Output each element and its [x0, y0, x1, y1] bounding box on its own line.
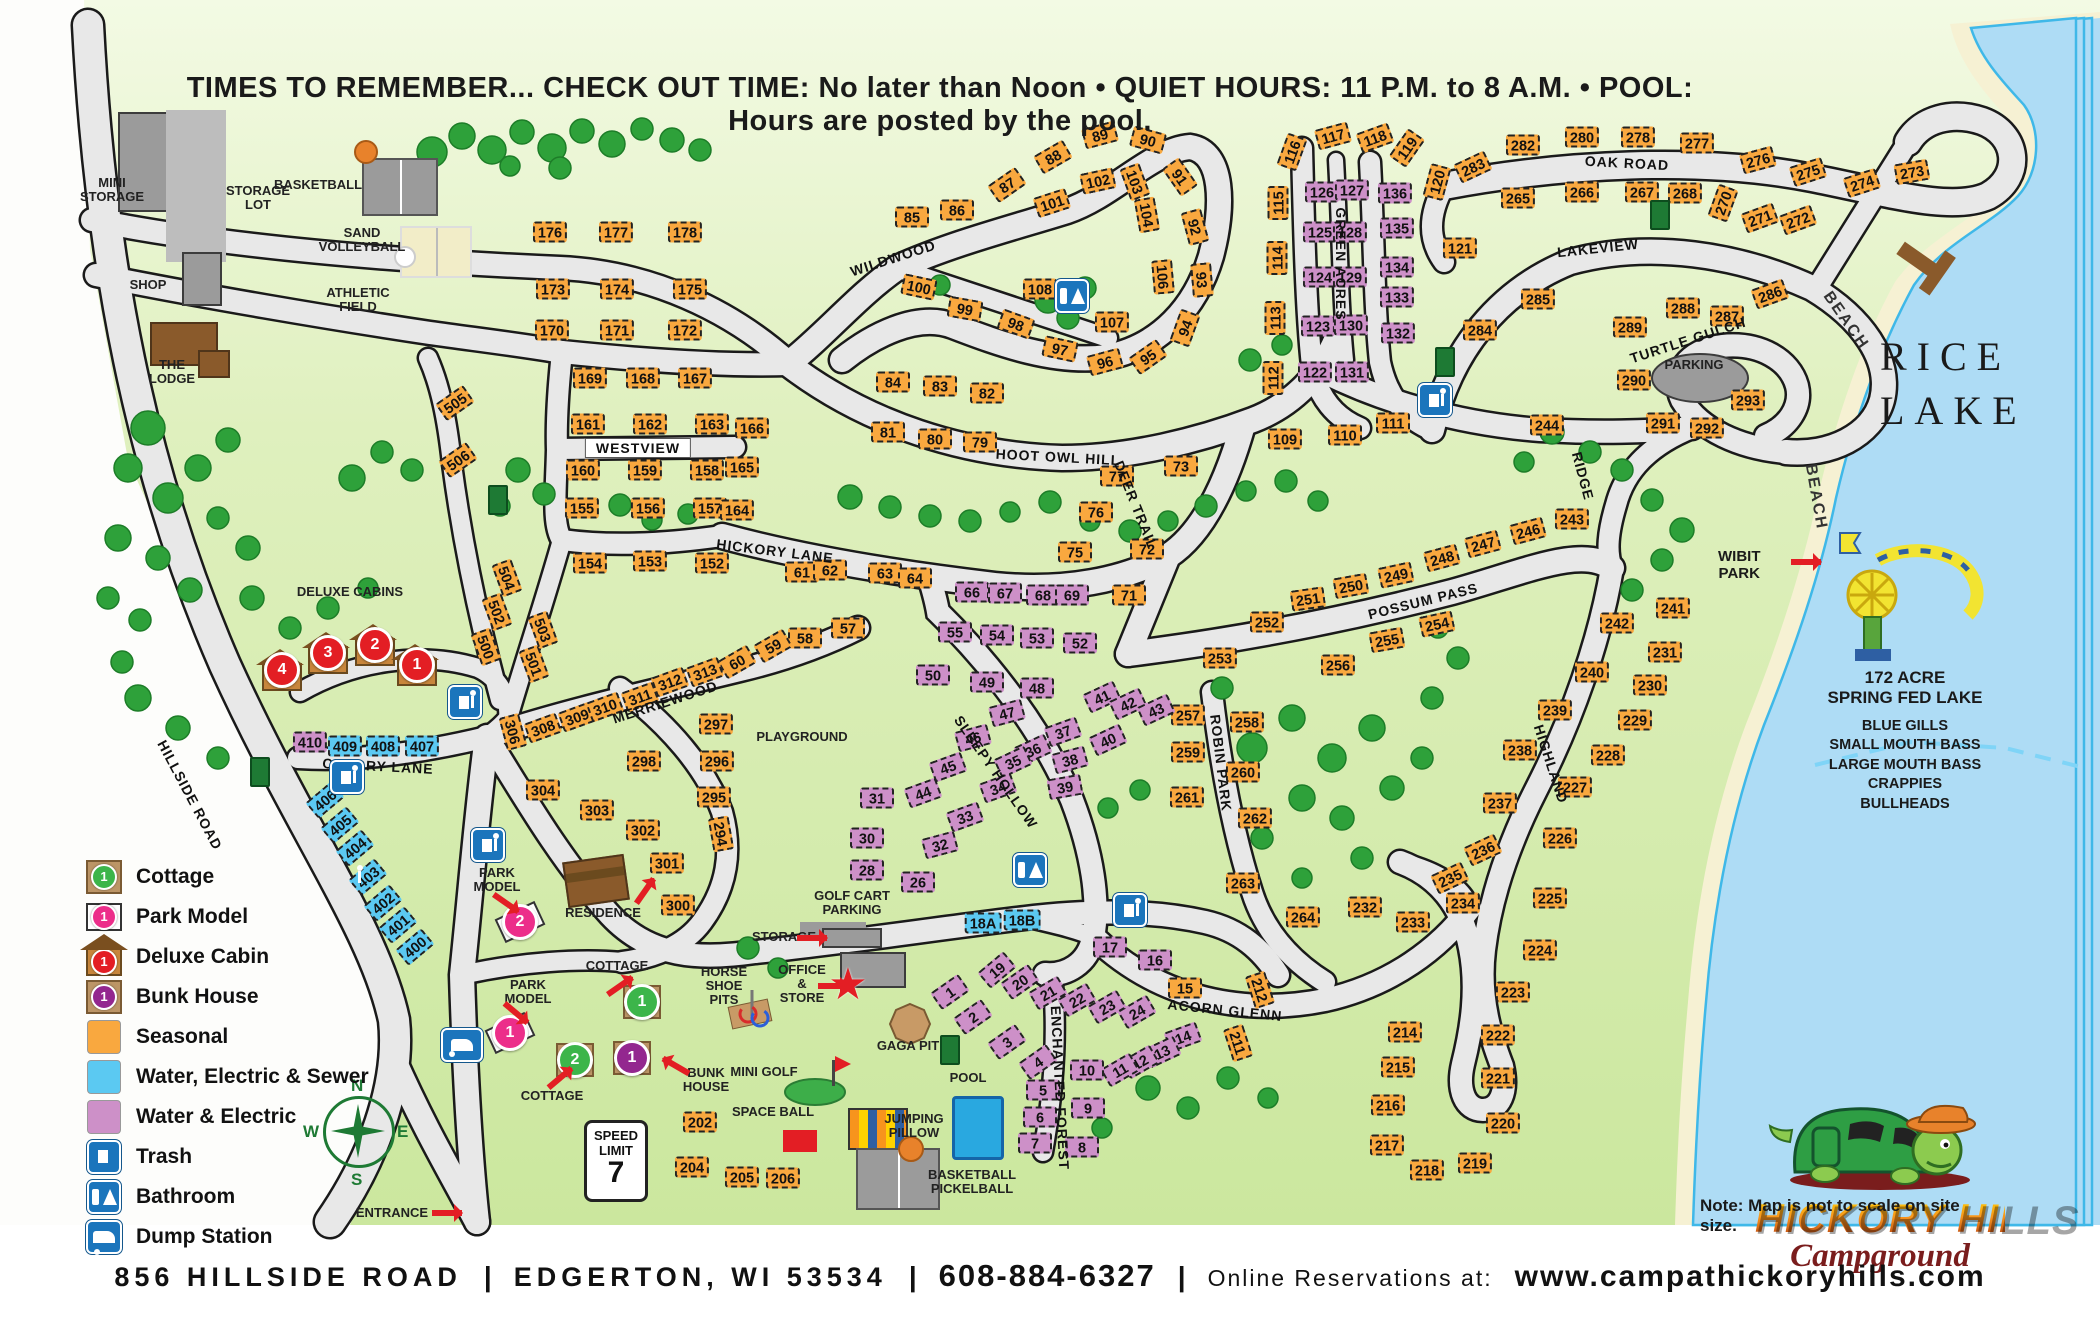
site-242: 242 — [1600, 613, 1634, 634]
site-131: 131 — [1335, 362, 1369, 383]
legend-item-water-electric: Water & Electric — [86, 1100, 369, 1133]
legend-label: Bathroom — [136, 1185, 235, 1209]
road-label-hillside-road: HILLSIDE ROAD — [154, 737, 225, 852]
site-104: 104 — [1134, 196, 1161, 233]
site-91: 91 — [1162, 157, 1199, 197]
site-240: 240 — [1575, 662, 1609, 683]
deluxe-cabin-1: 1 — [397, 644, 437, 686]
site-266: 266 — [1565, 182, 1599, 203]
site-220: 220 — [1486, 1113, 1520, 1134]
site-253: 253 — [1203, 648, 1237, 669]
site-58: 58 — [788, 628, 822, 649]
site-99: 99 — [946, 296, 983, 323]
site-501: 501 — [518, 644, 549, 683]
site-52: 52 — [1063, 633, 1097, 654]
site-160: 160 — [566, 460, 600, 481]
fish-item: LARGE MOUTH BASS — [1815, 756, 1995, 776]
site-96: 96 — [1086, 347, 1124, 376]
site-177: 177 — [599, 222, 633, 243]
facility-label-shop: SHOP — [130, 278, 167, 292]
site-120: 120 — [1422, 163, 1451, 201]
site-283: 283 — [1453, 150, 1493, 183]
site-273: 273 — [1893, 159, 1930, 186]
wibit-park-label: WIBIT PARK — [1718, 548, 1761, 582]
site-135: 135 — [1380, 218, 1414, 239]
site-165: 165 — [725, 457, 759, 478]
porta-potty-icon — [250, 757, 270, 787]
pointer-arrow-icon — [797, 935, 827, 941]
site-217: 217 — [1370, 1135, 1404, 1156]
porta-potty-icon — [940, 1035, 960, 1065]
site-103: 103 — [1119, 162, 1150, 201]
site-410: 410 — [293, 732, 327, 753]
site-171: 171 — [600, 320, 634, 341]
site-54: 54 — [980, 625, 1014, 646]
legend-swatch — [86, 1100, 122, 1134]
facility-label-park-model: PARK MODEL — [505, 978, 552, 1006]
pointer-arrow-icon — [634, 877, 656, 905]
site-265: 265 — [1501, 188, 1535, 209]
site-44: 44 — [903, 777, 942, 808]
site-308: 308 — [523, 712, 562, 743]
site-102: 102 — [1079, 167, 1117, 195]
site-407: 407 — [405, 736, 439, 757]
road-label-oak-road: OAK ROAD — [1585, 153, 1670, 173]
site-71: 71 — [1112, 585, 1146, 606]
site-97: 97 — [1041, 335, 1079, 363]
site-296: 296 — [700, 751, 734, 772]
site-169: 169 — [573, 368, 607, 389]
legend-item-seasonal: Seasonal — [86, 1020, 369, 1053]
road-label-ridge: RIDGE — [1569, 450, 1597, 502]
trash-icon — [471, 828, 505, 862]
site-73: 73 — [1164, 456, 1198, 477]
legend-label: Park Model — [136, 905, 248, 929]
site-82: 82 — [970, 383, 1004, 404]
site-106: 106 — [1151, 259, 1175, 295]
deluxe-cabin-2: 2 — [355, 624, 395, 666]
site-291: 291 — [1646, 413, 1680, 434]
site-256: 256 — [1321, 655, 1355, 676]
legend-swatch — [86, 1020, 122, 1054]
site-168: 168 — [626, 368, 660, 389]
bunk-house-icon: 1 — [86, 980, 122, 1014]
site-162: 162 — [633, 414, 667, 435]
fish-item: BLUE GILLS — [1815, 717, 1995, 737]
legend-item-bathroom: Bathroom — [86, 1180, 369, 1213]
facility-label-the-lodge: THE LODGE — [149, 358, 195, 386]
site-18B: 18B — [1004, 910, 1041, 931]
site-295: 295 — [697, 787, 731, 808]
site-37: 37 — [1043, 716, 1082, 747]
turtle-camper-mascot — [1755, 1072, 2005, 1192]
site-222: 222 — [1481, 1025, 1515, 1046]
site-248: 248 — [1423, 543, 1461, 572]
hickory-hills-logo: HICKORY HILLS Campground — [1755, 1072, 2005, 1275]
site-237: 237 — [1483, 793, 1517, 814]
facility-label-horse-shoe-pits: HORSE SHOE PITS — [701, 965, 747, 1007]
speed-limit-sign: SPEED LIMIT 7 — [584, 1120, 648, 1202]
dump-station-icon — [441, 1028, 483, 1062]
site-66: 66 — [955, 582, 989, 603]
site-288: 288 — [1666, 298, 1700, 319]
legend-item-bunk-house: 1Bunk House — [86, 980, 369, 1013]
site-7: 7 — [1018, 1133, 1052, 1154]
bunk-house-1: 1 — [613, 1041, 651, 1075]
site-294: 294 — [708, 815, 735, 852]
site-270: 270 — [1707, 183, 1738, 222]
footer-bar: 856 HILLSIDE ROAD | EDGERTON, WI 53534 |… — [0, 1258, 2100, 1294]
site-10: 10 — [1070, 1060, 1104, 1081]
pointer-arrow-icon — [1791, 559, 1821, 565]
trash-icon — [86, 1140, 122, 1174]
site-176: 176 — [533, 222, 567, 243]
legend-item-deluxe-cabin: 1Deluxe Cabin — [86, 940, 369, 973]
site-110: 110 — [1328, 425, 1362, 446]
site-234: 234 — [1446, 893, 1480, 914]
site-53: 53 — [1020, 628, 1054, 649]
site-155: 155 — [565, 498, 599, 519]
site-229: 229 — [1618, 710, 1652, 731]
site-159: 159 — [628, 460, 662, 481]
site-215: 215 — [1381, 1057, 1415, 1078]
porta-potty-icon — [1435, 347, 1455, 377]
fish-item: SMALL MOUTH BASS — [1815, 736, 1995, 756]
road-label-hoot-owl-hill: HOOT OWL HILL — [995, 446, 1120, 469]
fish-item: BULLHEADS — [1815, 795, 1995, 815]
site-108: 108 — [1023, 279, 1057, 300]
site-261: 261 — [1170, 787, 1204, 808]
trash-icon — [448, 685, 482, 719]
road-label-wildwood: WILDWOOD — [848, 237, 937, 280]
site-254: 254 — [1418, 610, 1456, 638]
site-211: 211 — [1223, 1024, 1253, 1063]
site-113: 113 — [1265, 301, 1286, 335]
times-to-remember-banner: TIMES TO REMEMBER... CHECK OUT TIME: No … — [140, 72, 1740, 138]
site-505: 505 — [435, 385, 475, 422]
site-112: 112 — [1263, 361, 1284, 395]
facility-label-sand-volleyball: SAND VOLLEYBALL — [319, 226, 406, 254]
site-9: 9 — [1071, 1098, 1105, 1119]
facility-label-mini-golf: MINI GOLF — [730, 1065, 797, 1079]
site-275: 275 — [1788, 157, 1827, 188]
site-408: 408 — [366, 736, 400, 757]
site-175: 175 — [673, 279, 707, 300]
site-40: 40 — [1088, 723, 1128, 756]
site-16: 16 — [1138, 950, 1172, 971]
deluxe-cabin-icon: 1 — [86, 938, 122, 976]
site-230: 230 — [1633, 675, 1667, 696]
site-107: 107 — [1095, 312, 1129, 333]
site-500: 500 — [470, 627, 501, 666]
site-94: 94 — [1169, 308, 1200, 347]
site-67: 67 — [988, 583, 1022, 604]
legend-item-park-model: 1Park Model — [86, 900, 369, 933]
site-297: 297 — [699, 714, 733, 735]
site-170: 170 — [535, 320, 569, 341]
rice-lake-label: RICELAKE — [1880, 330, 1990, 438]
site-231: 231 — [1648, 642, 1682, 663]
site-236: 236 — [1463, 833, 1503, 866]
site-172: 172 — [668, 320, 702, 341]
pointer-arrow-icon — [432, 1210, 462, 1216]
campground-map: TIMES TO REMEMBER... CHECK OUT TIME: No … — [0, 0, 2100, 1333]
site-24: 24 — [1117, 994, 1157, 1029]
site-111: 111 — [1376, 413, 1410, 434]
footer-reservations-label: Online Reservations at: — [1208, 1265, 1493, 1292]
site-504: 504 — [491, 558, 522, 597]
site-306: 306 — [498, 713, 527, 751]
site-75: 75 — [1058, 542, 1092, 563]
site-233: 233 — [1396, 912, 1430, 933]
deluxe-cabin-4: 4 — [262, 649, 302, 691]
site-247: 247 — [1464, 529, 1502, 558]
facility-label-jumping-pillow: JUMPING PILLOW — [884, 1112, 943, 1140]
trash-icon — [330, 760, 364, 794]
site-214: 214 — [1388, 1022, 1422, 1043]
facility-label-basketball-pickelball: BASKETBALL PICKELBALL — [928, 1168, 1016, 1196]
site-235: 235 — [1430, 861, 1470, 894]
site-93: 93 — [1190, 262, 1214, 298]
site-154: 154 — [573, 553, 607, 574]
trash-icon — [1418, 383, 1452, 417]
site-274: 274 — [1842, 168, 1881, 199]
road-label-westview: WESTVIEW — [585, 438, 691, 458]
site-221: 221 — [1481, 1068, 1515, 1089]
site-206: 206 — [766, 1168, 800, 1189]
site-293: 293 — [1731, 390, 1765, 411]
facility-label-golf-cart-parking: GOLF CART PARKING — [814, 889, 890, 917]
site-79: 79 — [963, 432, 997, 453]
site-161: 161 — [571, 414, 605, 435]
legend-item-dump-station: Dump Station — [86, 1220, 369, 1253]
road-label-green-acres: GREEN ACRES — [1333, 207, 1349, 320]
site-226: 226 — [1543, 828, 1577, 849]
site-39: 39 — [1046, 774, 1083, 801]
site-409: 409 — [328, 736, 362, 757]
site-249: 249 — [1377, 561, 1415, 589]
site-17: 17 — [1093, 937, 1127, 958]
site-3: 3 — [987, 1024, 1027, 1061]
fish-item: CRAPPIES — [1815, 775, 1995, 795]
site-204: 204 — [675, 1157, 709, 1178]
site-80: 80 — [918, 429, 952, 450]
legend-label: Dump Station — [136, 1225, 273, 1249]
facility-label-pool: POOL — [950, 1071, 987, 1085]
site-116: 116 — [1276, 132, 1307, 171]
facility-label-deluxe-cabins: DELUXE CABINS — [297, 585, 403, 599]
site-153: 153 — [633, 551, 667, 572]
site-228: 228 — [1591, 745, 1625, 766]
road-label-highland: HIGHLAND — [1531, 723, 1572, 806]
site-251: 251 — [1290, 586, 1327, 612]
site-133: 133 — [1380, 287, 1414, 308]
park-model-icon: 1 — [86, 903, 122, 931]
road-label-hickory-lane: HICKORY LANE — [716, 536, 835, 566]
site-292: 292 — [1690, 418, 1724, 439]
site-86: 86 — [940, 200, 974, 221]
trash-icon — [1113, 893, 1147, 927]
legend-label: Water & Electric — [136, 1105, 296, 1129]
legend-item-water-electric-sewer: Water, Electric & Sewer — [86, 1060, 369, 1093]
site-87: 87 — [987, 167, 1027, 204]
site-286: 286 — [1750, 278, 1789, 309]
cottage-icon: 1 — [86, 860, 122, 894]
site-6: 6 — [1023, 1107, 1057, 1128]
facility-label-playground: PLAYGROUND — [756, 730, 847, 744]
site-255: 255 — [1368, 627, 1405, 654]
site-31: 31 — [860, 788, 894, 809]
site-506: 506 — [438, 442, 478, 479]
site-158: 158 — [690, 460, 724, 481]
site-166: 166 — [735, 418, 769, 439]
site-69: 69 — [1055, 585, 1089, 606]
site-174: 174 — [600, 279, 634, 300]
deluxe-cabin-3: 3 — [308, 632, 348, 674]
site-64: 64 — [898, 568, 932, 589]
site-289: 289 — [1613, 317, 1647, 338]
site-134: 134 — [1380, 257, 1414, 278]
site-114: 114 — [1267, 241, 1288, 275]
pointer-arrow-icon — [818, 983, 848, 989]
site-259: 259 — [1171, 742, 1205, 763]
site-285: 285 — [1521, 289, 1555, 310]
road-label-lakeview: LAKEVIEW — [1556, 236, 1639, 260]
site-264: 264 — [1286, 907, 1320, 928]
legend-label: Bunk House — [136, 985, 259, 1009]
site-205: 205 — [725, 1167, 759, 1188]
site-109: 109 — [1268, 429, 1302, 450]
site-218: 218 — [1410, 1160, 1444, 1181]
site-219: 219 — [1458, 1153, 1492, 1174]
site-95: 95 — [1128, 339, 1168, 376]
site-123: 123 — [1301, 316, 1335, 337]
site-88: 88 — [1033, 139, 1073, 174]
site-257: 257 — [1171, 705, 1205, 726]
legend-item-cottage: 1Cottage — [86, 860, 369, 893]
site-28: 28 — [850, 860, 884, 881]
legend-label: Water, Electric & Sewer — [136, 1065, 369, 1089]
legend-swatch — [86, 1060, 122, 1094]
site-38: 38 — [1051, 745, 1089, 774]
site-127: 127 — [1335, 180, 1369, 201]
footer-address: 856 HILLSIDE ROAD — [114, 1262, 462, 1293]
site-85: 85 — [895, 207, 929, 228]
legend-label: Seasonal — [136, 1025, 228, 1049]
site-271: 271 — [1740, 202, 1779, 233]
facility-label-residence: RESIDENCE — [565, 906, 641, 920]
site-48: 48 — [1020, 678, 1054, 699]
site-238: 238 — [1503, 740, 1537, 761]
site-246: 246 — [1509, 516, 1547, 545]
site-1: 1 — [930, 974, 970, 1011]
site-290: 290 — [1617, 370, 1651, 391]
site-178: 178 — [668, 222, 702, 243]
map-legend: 1Cottage1Park Model1Deluxe Cabin1Bunk Ho… — [86, 860, 369, 1260]
site-272: 272 — [1778, 204, 1817, 235]
site-2: 2 — [953, 999, 993, 1036]
bathroom-icon — [1013, 853, 1047, 887]
site-202: 202 — [683, 1112, 717, 1133]
site-216: 216 — [1371, 1095, 1405, 1116]
site-250: 250 — [1332, 573, 1369, 600]
facility-label-parking: PARKING — [1665, 358, 1724, 372]
legend-label: Cottage — [136, 865, 214, 889]
site-121: 121 — [1443, 238, 1477, 259]
site-26: 26 — [901, 872, 935, 893]
site-115: 115 — [1268, 186, 1289, 220]
porta-potty-icon — [488, 485, 508, 515]
site-276: 276 — [1739, 145, 1777, 174]
site-101: 101 — [1032, 188, 1071, 219]
site-55: 55 — [938, 622, 972, 643]
site-223: 223 — [1496, 982, 1530, 1003]
legend-label: Trash — [136, 1145, 192, 1169]
facility-label-mini-storage: MINI STORAGE — [80, 176, 144, 204]
site-163: 163 — [695, 414, 729, 435]
site-173: 173 — [536, 279, 570, 300]
site-76: 76 — [1079, 502, 1113, 523]
site-136: 136 — [1378, 183, 1412, 204]
site-100: 100 — [900, 273, 938, 301]
site-263: 263 — [1226, 873, 1260, 894]
site-224: 224 — [1523, 940, 1557, 961]
cottage-1: 1 — [623, 985, 661, 1019]
site-50: 50 — [916, 665, 950, 686]
site-239: 239 — [1538, 700, 1572, 721]
footer-city: EDGERTON, WI 53534 — [514, 1262, 887, 1293]
footer-phone: 608-884-6327 — [939, 1258, 1156, 1294]
site-59: 59 — [753, 628, 793, 663]
site-81: 81 — [871, 422, 905, 443]
site-57: 57 — [831, 618, 865, 639]
dump-station-icon — [86, 1220, 122, 1254]
bathroom-icon — [86, 1180, 122, 1214]
site-298: 298 — [627, 751, 661, 772]
site-258: 258 — [1230, 712, 1264, 733]
site-300: 300 — [661, 895, 695, 916]
site-98: 98 — [996, 308, 1035, 339]
facility-label-cottage: COTTAGE — [521, 1089, 584, 1103]
facility-label-park-model: PARK MODEL — [474, 866, 521, 894]
legend-label: Deluxe Cabin — [136, 945, 269, 969]
site-156: 156 — [631, 498, 665, 519]
map-note: Note: Map is not to scale on site size. — [1700, 1196, 1970, 1236]
site-252: 252 — [1250, 612, 1284, 633]
site-164: 164 — [720, 500, 754, 521]
site-241: 241 — [1656, 598, 1690, 619]
site-18A: 18A — [965, 913, 1002, 934]
facility-label-gaga-pit: GAGA PIT — [877, 1039, 939, 1053]
site-167: 167 — [678, 368, 712, 389]
lake-info: 172 ACRESPRING FED LAKE BLUE GILLSSMALL … — [1815, 668, 1995, 815]
site-303: 303 — [580, 800, 614, 821]
footer-website: www.campathickoryhills.com — [1515, 1260, 1986, 1294]
facility-label-athletic-field: ATHLETIC FIELD — [326, 286, 389, 314]
site-262: 262 — [1238, 808, 1272, 829]
facility-label-space-ball: SPACE BALL — [732, 1105, 814, 1119]
site-232: 232 — [1348, 897, 1382, 918]
site-30: 30 — [850, 828, 884, 849]
site-268: 268 — [1668, 183, 1702, 204]
site-243: 243 — [1555, 509, 1589, 530]
site-84: 84 — [876, 372, 910, 393]
bathroom-icon — [1055, 279, 1089, 313]
site-63: 63 — [868, 563, 902, 584]
site-33: 33 — [945, 801, 984, 832]
site-49: 49 — [970, 672, 1004, 693]
site-302: 302 — [626, 820, 660, 841]
